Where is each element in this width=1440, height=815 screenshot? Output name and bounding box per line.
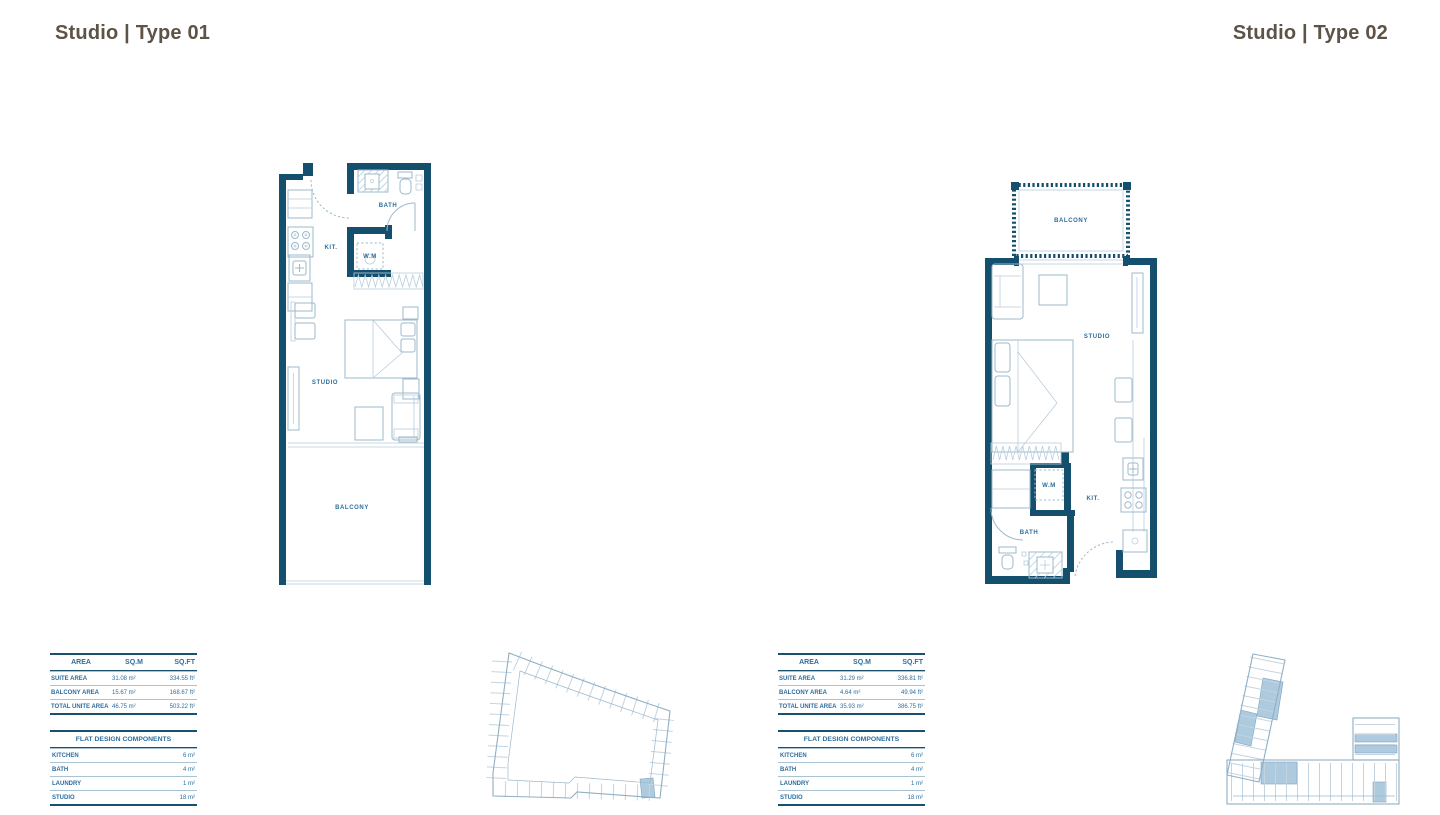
table-row: SUITE AREA 31.08 m² 334.55 ft²	[50, 671, 197, 685]
studio-label: STUDIO	[312, 380, 338, 386]
row-sqft: 49.94 ft²	[884, 690, 925, 696]
bath-label: BATH	[1020, 530, 1039, 536]
area-table-header: AREA SQ.M SQ.FT	[50, 655, 197, 671]
row-value: 4 m²	[911, 767, 923, 773]
wm-label: W.M	[1042, 483, 1056, 489]
kitchen-counter	[288, 190, 312, 311]
col-header-sqm: SQ.M	[840, 659, 884, 666]
components-table-type01: FLAT DESIGN COMPONENTS KITCHEN 6 m² BATH…	[50, 730, 197, 806]
row-label: LAUNDRY	[51, 781, 81, 787]
kitchen-sink	[1123, 530, 1147, 552]
row-label: KITCHEN	[779, 753, 807, 759]
bath-label: BATH	[379, 203, 398, 209]
row-value: 6 m²	[183, 753, 195, 759]
col-header-sqm: SQ.M	[112, 659, 156, 666]
kitchen-label: KIT.	[1086, 496, 1099, 502]
bar-counter	[1115, 340, 1144, 532]
row-label: SUITE AREA	[778, 676, 840, 682]
sofa	[992, 264, 1023, 319]
row-sqft: 503.22 ft²	[156, 704, 197, 710]
table-row: STUDIO 18 m²	[50, 790, 197, 804]
components-table-title: FLAT DESIGN COMPONENTS	[50, 732, 197, 748]
area-table-type01: AREA SQ.M SQ.FT SUITE AREA 31.08 m² 334.…	[50, 653, 197, 715]
bed	[992, 340, 1073, 452]
sofa	[392, 393, 420, 440]
row-sqft: 334.55 ft²	[156, 676, 197, 682]
row-sqm: 4.64 m²	[840, 690, 884, 696]
desk-chairs	[291, 302, 315, 341]
row-label: LAUNDRY	[779, 781, 809, 787]
row-sqft: 168.67 ft²	[156, 690, 197, 696]
page-title-type02: Studio | Type 02	[1233, 22, 1388, 45]
balcony-window	[1019, 260, 1123, 264]
table-row: STUDIO 18 m²	[778, 790, 925, 804]
col-header-area: AREA	[50, 659, 112, 666]
bed	[345, 307, 419, 399]
table-row: TOTAL UNITE AREA 35.93 m² 386.75 ft²	[778, 699, 925, 713]
table-row: BALCONY AREA 15.67 m² 168.67 ft²	[50, 685, 197, 699]
studio-label: STUDIO	[1084, 334, 1110, 340]
balcony-label: BALCONY	[1054, 218, 1088, 224]
desk	[1132, 273, 1143, 333]
row-value: 1 m²	[183, 781, 195, 787]
row-sqm: 31.08 m²	[112, 676, 156, 682]
toilet	[999, 547, 1028, 569]
table-row: BATH 4 m²	[50, 762, 197, 776]
unit-highlights	[1235, 678, 1397, 802]
area-table-header: AREA SQ.M SQ.FT	[778, 655, 925, 671]
fridge	[289, 255, 310, 281]
row-sqft: 386.75 ft²	[884, 704, 925, 710]
kitchen-label: KIT.	[324, 245, 337, 251]
row-label: TOTAL UNITE AREA	[50, 704, 112, 710]
components-table-type02: FLAT DESIGN COMPONENTS KITCHEN 6 m² BATH…	[778, 730, 925, 806]
building-outline	[493, 653, 670, 798]
row-label: KITCHEN	[51, 753, 79, 759]
row-sqm: 46.75 m²	[112, 704, 156, 710]
row-label: BALCONY AREA	[50, 690, 112, 696]
row-sqm: 15.67 m²	[112, 690, 156, 696]
row-label: BALCONY AREA	[778, 690, 840, 696]
row-value: 6 m²	[911, 753, 923, 759]
row-label: STUDIO	[779, 795, 803, 801]
key-plan-type01	[483, 645, 675, 809]
row-label: STUDIO	[51, 795, 75, 801]
col-header-sqft: SQ.FT	[884, 659, 925, 666]
floorplan-brochure-page: Studio | Type 01 Studio | Type 02	[0, 0, 1440, 815]
row-value: 4 m²	[183, 767, 195, 773]
floor-plan-type01-drawing: BATH KIT. W.M STUDIO BALCONY	[277, 163, 433, 589]
table-row: TOTAL UNITE AREA 46.75 m² 503.22 ft²	[50, 699, 197, 713]
table-row: BALCONY AREA 4.64 m² 49.94 ft²	[778, 685, 925, 699]
row-sqft: 336.81 ft²	[884, 676, 925, 682]
storage-cabinet	[992, 470, 1030, 508]
row-label: BATH	[51, 767, 68, 773]
table-row: KITCHEN 6 m²	[50, 748, 197, 762]
balcony-railing	[286, 581, 424, 584]
shower	[358, 170, 388, 192]
entry-door-arc	[311, 180, 349, 218]
row-label: SUITE AREA	[50, 676, 112, 682]
col-header-sqft: SQ.FT	[156, 659, 197, 666]
row-value: 18 m²	[180, 795, 195, 801]
tv-console	[288, 367, 299, 430]
coffee-table	[355, 407, 383, 440]
balcony-window	[288, 437, 424, 447]
area-table-type02: AREA SQ.M SQ.FT SUITE AREA 31.29 m² 336.…	[778, 653, 925, 715]
type02-data-tables: AREA SQ.M SQ.FT SUITE AREA 31.29 m² 336.…	[778, 653, 925, 806]
row-sqm: 35.93 m²	[840, 704, 884, 710]
table-row: LAUNDRY 1 m²	[778, 776, 925, 790]
table-row: KITCHEN 6 m²	[778, 748, 925, 762]
table-row: LAUNDRY 1 m²	[50, 776, 197, 790]
components-table-title: FLAT DESIGN COMPONENTS	[778, 732, 925, 748]
unit-divisions	[496, 661, 665, 793]
page-title-type01: Studio | Type 01	[55, 22, 210, 45]
coffee-table	[1039, 275, 1067, 305]
balcony-label: BALCONY	[335, 505, 369, 511]
table-row: BATH 4 m²	[778, 762, 925, 776]
row-label: TOTAL UNITE AREA	[778, 704, 840, 710]
row-label: BATH	[779, 767, 796, 773]
floor-plan-type02-drawing: BALCONY STUDIO W.M KIT. BATH	[983, 180, 1159, 590]
table-row: SUITE AREA 31.29 m² 336.81 ft²	[778, 671, 925, 685]
toilet	[398, 172, 422, 194]
entry-door-arc	[1075, 542, 1115, 576]
row-sqm: 31.29 m²	[840, 676, 884, 682]
type01-data-tables: AREA SQ.M SQ.FT SUITE AREA 31.08 m² 334.…	[50, 653, 197, 806]
row-value: 18 m²	[908, 795, 923, 801]
unit-highlight	[640, 778, 655, 798]
col-header-area: AREA	[778, 659, 840, 666]
wm-label: W.M	[363, 254, 377, 260]
shower	[1029, 552, 1062, 578]
row-value: 1 m²	[911, 781, 923, 787]
key-plan-type02	[1203, 648, 1408, 810]
stove	[288, 227, 313, 257]
stove	[1121, 488, 1146, 512]
bath-door-arc	[991, 508, 1023, 540]
